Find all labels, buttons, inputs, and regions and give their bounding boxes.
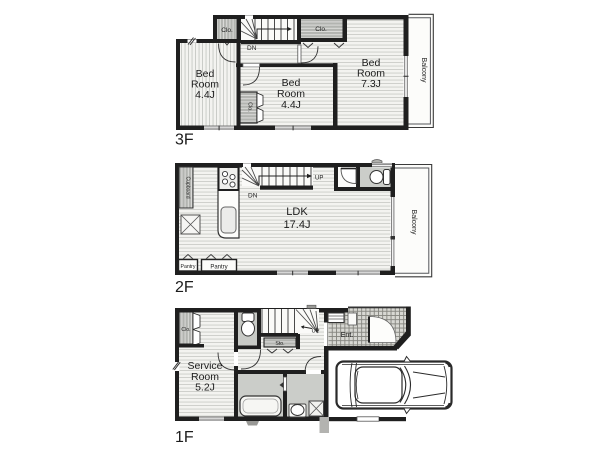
svg-text:7.3J: 7.3J bbox=[361, 78, 381, 90]
svg-text:4.4J: 4.4J bbox=[281, 99, 301, 111]
svg-text:2F: 2F bbox=[175, 279, 194, 296]
svg-text:Clo.: Clo. bbox=[247, 102, 253, 112]
svg-text:UP: UP bbox=[315, 176, 323, 182]
svg-text:Balcony: Balcony bbox=[410, 210, 417, 235]
svg-text:Clo.: Clo. bbox=[181, 327, 190, 333]
svg-text:LDK: LDK bbox=[286, 206, 308, 218]
svg-text:Cupboard: Cupboard bbox=[185, 177, 191, 199]
svg-text:Balcony: Balcony bbox=[420, 58, 427, 83]
svg-text:Ent.: Ent. bbox=[341, 332, 354, 339]
svg-text:DN: DN bbox=[248, 193, 258, 200]
svg-text:4.4J: 4.4J bbox=[195, 89, 215, 101]
svg-text:Sto.: Sto. bbox=[275, 341, 284, 347]
svg-text:5.2J: 5.2J bbox=[195, 382, 215, 394]
svg-text:Clo.: Clo. bbox=[221, 27, 233, 34]
svg-text:Pantry: Pantry bbox=[181, 264, 196, 270]
svg-text:3F: 3F bbox=[175, 132, 194, 149]
svg-text:UP: UP bbox=[312, 329, 320, 335]
svg-text:17.4J: 17.4J bbox=[284, 219, 311, 231]
svg-text:Clo.: Clo. bbox=[315, 26, 327, 33]
svg-text:DN: DN bbox=[247, 45, 257, 52]
svg-text:1F: 1F bbox=[175, 429, 194, 446]
svg-text:Pantry: Pantry bbox=[210, 265, 227, 271]
